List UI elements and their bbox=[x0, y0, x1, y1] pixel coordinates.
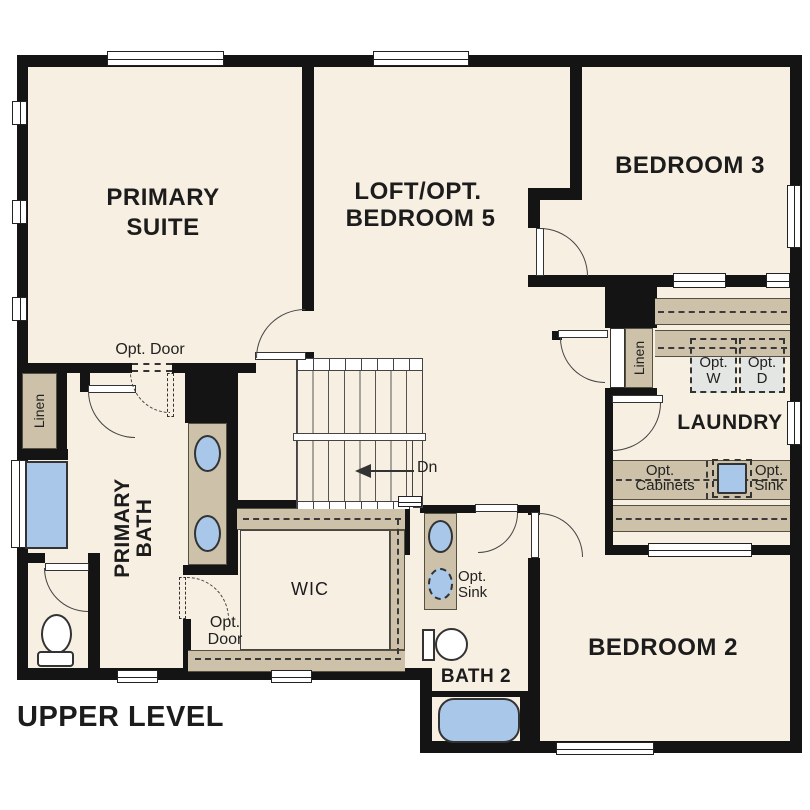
wall-hall-bath2-a bbox=[420, 505, 476, 513]
floor-plan: Linen Linen bbox=[0, 0, 810, 810]
wall-vanity-block bbox=[185, 363, 227, 423]
bath2-label: BATH 2 bbox=[436, 666, 516, 688]
loft-label-2: BEDROOM 5 bbox=[333, 205, 508, 233]
primary-suite-label-1: PRIMARY bbox=[83, 184, 243, 212]
wall-bath2-bed2 bbox=[528, 558, 540, 753]
wall-loft-bed3-jog bbox=[528, 188, 582, 200]
bath2-toilet-bowl bbox=[435, 628, 468, 661]
wall-bed3-bottom bbox=[528, 275, 790, 287]
wic-opt-door-leaf bbox=[179, 577, 186, 619]
bedroom2-label: BEDROOM 2 bbox=[578, 634, 748, 662]
stairs-upper-treads bbox=[297, 371, 422, 433]
suite-opt-door-gap bbox=[132, 363, 172, 372]
laundry-sink bbox=[717, 463, 747, 494]
bath2-tub bbox=[438, 698, 520, 743]
bedroom3-label: BEDROOM 3 bbox=[600, 152, 780, 180]
wall-suite-bottom-b bbox=[172, 363, 186, 373]
stairs-bottom-landing bbox=[297, 501, 413, 509]
wall-loft-bed3-lower bbox=[528, 200, 540, 228]
down-arrow-line bbox=[371, 470, 414, 472]
opt-door-wic-label-1: Opt. bbox=[200, 615, 250, 631]
wic-dash-bottom bbox=[195, 658, 401, 660]
wic-shelf-bottom bbox=[188, 650, 405, 672]
window-left-2 bbox=[12, 200, 27, 224]
wic-label: WIC bbox=[285, 579, 335, 600]
bath2-toilet-tank bbox=[422, 629, 435, 661]
primary-bath-label: PRIMARY BATH bbox=[111, 453, 157, 603]
window-right-bedroom3 bbox=[787, 185, 801, 248]
wall-tub2-right bbox=[520, 691, 528, 743]
wic-dash-top bbox=[243, 518, 401, 520]
window-bottom-wic bbox=[271, 670, 312, 683]
primary-sink-2 bbox=[194, 515, 221, 552]
hall-corridor-door-leaf bbox=[558, 330, 608, 338]
opt-sink-bath2-label-2: Sink bbox=[458, 585, 498, 601]
wall-suite-bottom-c bbox=[227, 363, 256, 373]
laundry-label: LAUNDRY bbox=[670, 411, 790, 435]
linen-left-label: Linen bbox=[32, 394, 48, 428]
slider-bedroom3-closet-a bbox=[673, 273, 726, 288]
opt-sink-laundry-label-2: Sink bbox=[748, 478, 790, 494]
wall-step bbox=[420, 668, 432, 753]
opt-d-label-1: Opt. bbox=[739, 355, 785, 371]
slider-stairs-base bbox=[398, 496, 422, 507]
opt-d-label-2: D bbox=[739, 371, 785, 387]
primary-suite-label-2: SUITE bbox=[83, 214, 243, 242]
laundry-door-leaf bbox=[612, 395, 663, 403]
bath2-sink bbox=[428, 520, 453, 553]
opt-door-wic-label-2: Door bbox=[200, 632, 250, 648]
primary-toilet-bowl bbox=[41, 614, 72, 654]
window-left-tub bbox=[11, 460, 26, 548]
staircase bbox=[296, 358, 423, 508]
bed3-closet-dash bbox=[658, 311, 787, 313]
laundry-shelf-dash bbox=[658, 347, 787, 349]
wall-linen-bottom bbox=[22, 449, 68, 460]
primary-shower-tub bbox=[25, 461, 68, 549]
linen-closet-left: Linen bbox=[22, 373, 57, 449]
stairs-mid-rail bbox=[293, 433, 426, 441]
window-top-loft bbox=[373, 51, 469, 66]
linen-closet-right: Linen bbox=[625, 328, 653, 388]
bedroom2-door-leaf bbox=[531, 512, 539, 558]
opt-sink-bath2-label-1: Opt. bbox=[458, 569, 498, 585]
window-left-3 bbox=[12, 297, 27, 321]
window-top-suite bbox=[107, 51, 224, 66]
wall-loft-bed3-upper bbox=[570, 55, 582, 195]
slider-bedroom2-closet bbox=[648, 543, 752, 557]
primary-toilet-tank bbox=[37, 651, 74, 667]
primary-sink-1 bbox=[194, 435, 221, 472]
dn-label: Dn bbox=[417, 460, 447, 476]
linen2-front bbox=[610, 328, 625, 388]
stairs-top-landing bbox=[297, 359, 422, 371]
wic-dash-right bbox=[397, 519, 399, 654]
opt-w-label-1: Opt. bbox=[690, 355, 737, 371]
opt-door-suite-label: Opt. Door bbox=[100, 342, 200, 358]
wall-toiletroom-top bbox=[17, 553, 45, 563]
counter-dash-v1 bbox=[706, 461, 708, 499]
bath2-door-leaf bbox=[475, 504, 518, 512]
primary-bath-label-1: PRIMARY bbox=[112, 478, 134, 578]
wall-linen-right bbox=[57, 373, 67, 459]
loft-label-1: LOFT/OPT. bbox=[338, 178, 498, 206]
bath2-opt-sink bbox=[428, 568, 453, 600]
wall-vanity-right bbox=[227, 373, 238, 575]
wall-bath-wic bbox=[183, 565, 237, 575]
down-arrow-head bbox=[355, 464, 371, 478]
slider-bedroom3-closet-b bbox=[766, 273, 790, 288]
wall-suite-loft bbox=[302, 55, 314, 311]
wall-hall-block bbox=[605, 287, 657, 328]
page-title: UPPER LEVEL bbox=[17, 701, 337, 734]
window-left-1 bbox=[12, 101, 27, 125]
window-bottom-toilet bbox=[117, 670, 158, 683]
opt-cabinets-label-2: Cabinets bbox=[625, 478, 705, 494]
opt-w-label-2: W bbox=[690, 371, 737, 387]
window-bottom-bedroom2 bbox=[556, 742, 654, 755]
primary-bath-label-2: BATH bbox=[134, 499, 156, 558]
wall-suite-bottom-a bbox=[17, 363, 132, 373]
wall-toiletroom-right bbox=[88, 553, 100, 674]
wall-tub2-top bbox=[432, 691, 528, 697]
linen-right-label: Linen bbox=[631, 341, 647, 375]
bed2-closet-dash bbox=[616, 518, 787, 520]
